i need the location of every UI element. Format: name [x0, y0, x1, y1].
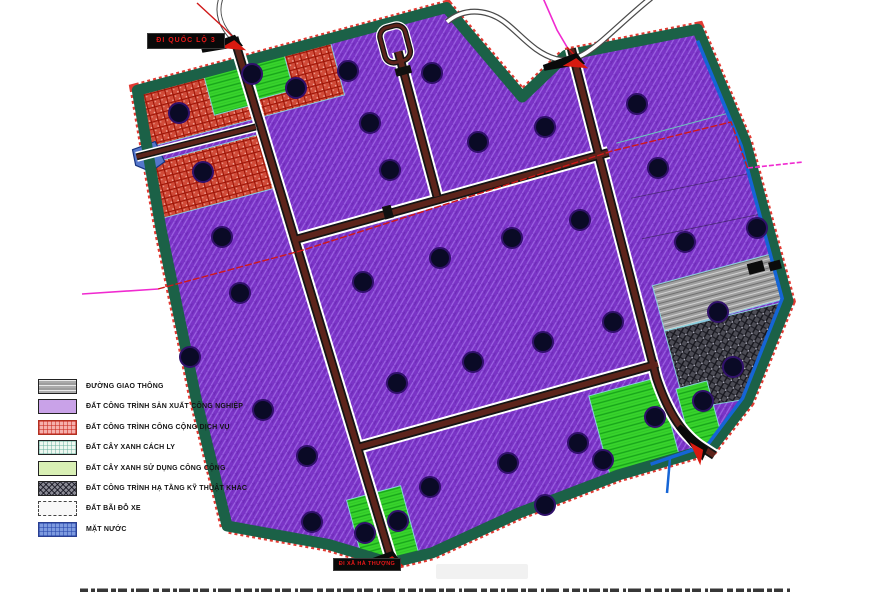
tree-dot [535, 495, 555, 515]
tree-dot [723, 357, 743, 377]
legend-swatch-water [38, 522, 77, 537]
tree-dot [675, 232, 695, 252]
legend-row-parking: ĐẤT BÃI ĐỖ XE [38, 501, 318, 516]
tree-dot [603, 312, 623, 332]
planning-map-canvas: ĐI QUỐC LỘ 3 ĐI XÃ HÀ THƯỢNG ĐƯỜNG GIAO … [0, 0, 888, 592]
tree-dot [230, 283, 250, 303]
tree-dot [570, 210, 590, 230]
tree-dot [193, 162, 213, 182]
tree-dot [338, 61, 358, 81]
legend: ĐƯỜNG GIAO THÔNG ĐẤT CÔNG TRÌNH SẢN XUẤT… [38, 379, 318, 542]
tree-dot [645, 407, 665, 427]
tree-dot [286, 78, 306, 98]
tree-dot [387, 373, 407, 393]
tree-dot [533, 332, 553, 352]
legend-label: ĐẤT CÔNG TRÌNH CÔNG CỘNG DỊCH VỤ [86, 424, 230, 431]
tree-dot [212, 227, 232, 247]
tree-dot [693, 391, 713, 411]
legend-label: ĐẤT CÔNG TRÌNH HẠ TẦNG KỸ THUẬT KHÁC [86, 485, 247, 492]
label-to-commune: ĐI XÃ HÀ THƯỢNG [333, 558, 401, 571]
legend-swatch-technical [38, 481, 77, 496]
tree-dot [627, 94, 647, 114]
tree-dot [355, 523, 375, 543]
tree-dot [593, 450, 613, 470]
tree-dot [502, 228, 522, 248]
legend-swatch-parking [38, 501, 77, 516]
tree-dot [535, 117, 555, 137]
legend-row-public-service: ĐẤT CÔNG TRÌNH CÔNG CỘNG DỊCH VỤ [38, 420, 318, 435]
tree-dot [353, 272, 373, 292]
legend-row-water: MẶT NƯỚC [38, 522, 318, 537]
legend-swatch-public-service [38, 420, 77, 435]
tree-dot [420, 477, 440, 497]
legend-label: ĐƯỜNG GIAO THÔNG [86, 383, 164, 390]
legend-swatch-isolation-green [38, 440, 77, 455]
tree-dot [708, 302, 728, 322]
legend-label: ĐẤT BÃI ĐỖ XE [86, 505, 141, 512]
tree-dot [463, 352, 483, 372]
label-to-highway: ĐI QUỐC LỘ 3 [147, 33, 225, 49]
legend-label: ĐẤT CÂY XANH SỬ DỤNG CÔNG CỘNG [86, 465, 226, 472]
legend-row-roads: ĐƯỜNG GIAO THÔNG [38, 379, 318, 394]
legend-swatch-industrial [38, 399, 77, 414]
legend-label: MẶT NƯỚC [86, 526, 127, 533]
tree-dot [498, 453, 518, 473]
legend-label: ĐẤT CÂY XANH CÁCH LY [86, 444, 175, 451]
legend-row-public-green: ĐẤT CÂY XANH SỬ DỤNG CÔNG CỘNG [38, 461, 318, 476]
watermark [436, 564, 528, 579]
legend-row-isolation-green: ĐẤT CÂY XANH CÁCH LY [38, 440, 318, 455]
tree-dot [747, 218, 767, 238]
legend-row-industrial: ĐẤT CÔNG TRÌNH SẢN XUẤT CÔNG NGHIỆP [38, 399, 318, 414]
tree-dot [180, 347, 200, 367]
tree-dot [568, 433, 588, 453]
tree-dot [468, 132, 488, 152]
legend-swatch-roads [38, 379, 77, 394]
tree-dot [388, 511, 408, 531]
legend-row-technical: ĐẤT CÔNG TRÌNH HẠ TẦNG KỸ THUẬT KHÁC [38, 481, 318, 496]
tree-dot [422, 63, 442, 83]
tree-dot [360, 113, 380, 133]
legend-label: ĐẤT CÔNG TRÌNH SẢN XUẤT CÔNG NGHIỆP [86, 403, 243, 410]
legend-swatch-public-green [38, 461, 77, 476]
tree-dot [380, 160, 400, 180]
tree-dot [648, 158, 668, 178]
tree-dot [430, 248, 450, 268]
tree-dot [242, 64, 262, 84]
tree-dot [169, 103, 189, 123]
